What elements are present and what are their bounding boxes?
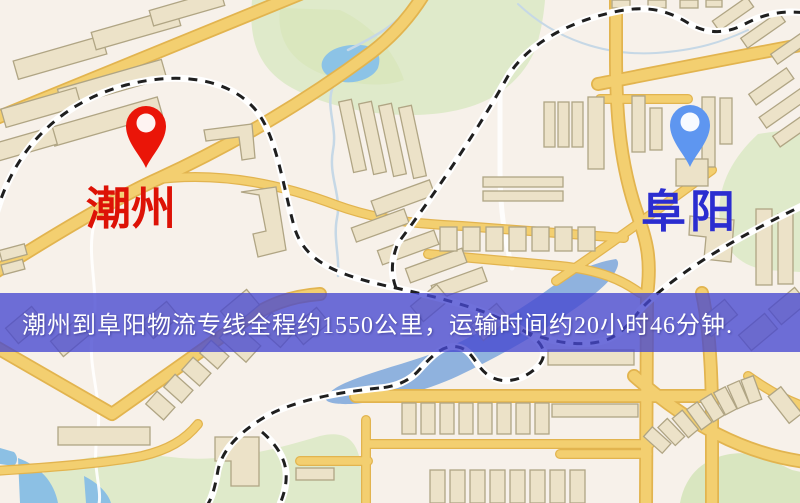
map-canvas[interactable]: 潮州 阜阳 潮州到阜阳物流专线全程约1550公里，运输时间约20小时46分钟. bbox=[0, 0, 800, 503]
base-map bbox=[0, 0, 800, 503]
destination-city-label: 阜阳 bbox=[641, 175, 739, 240]
origin-city-label: 潮州 bbox=[86, 172, 176, 237]
route-info-banner: 潮州到阜阳物流专线全程约1550公里，运输时间约20小时46分钟. bbox=[0, 293, 800, 352]
route-info-text: 潮州到阜阳物流专线全程约1550公里，运输时间约20小时46分钟. bbox=[22, 305, 733, 340]
